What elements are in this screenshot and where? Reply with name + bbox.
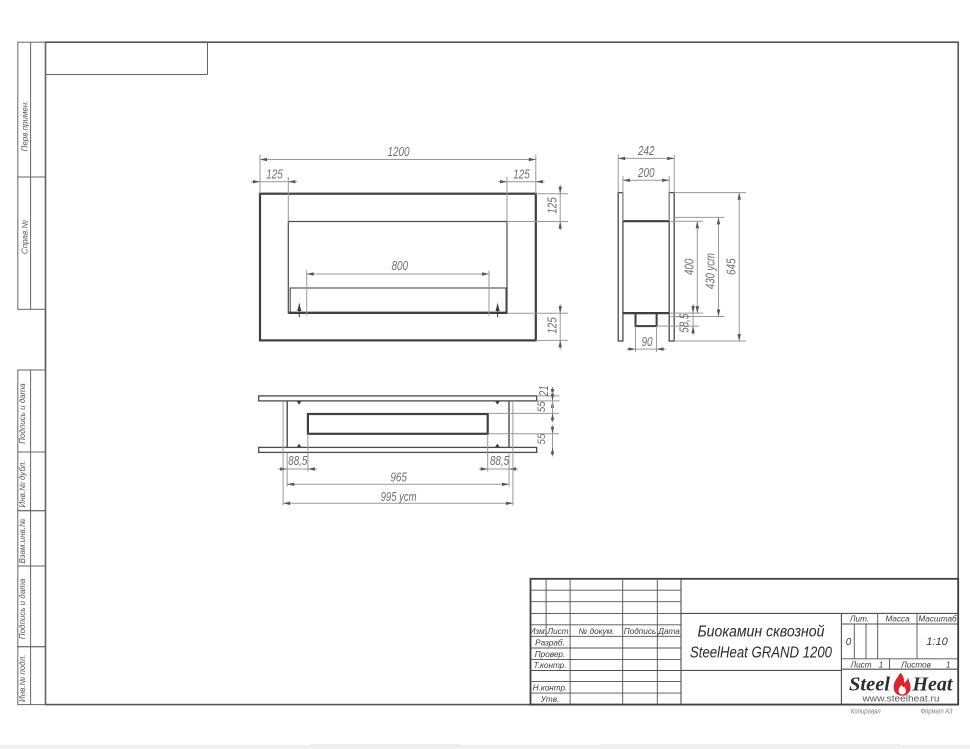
svg-text:58,5: 58,5 — [678, 314, 692, 333]
svg-text:125: 125 — [513, 167, 530, 181]
svg-text:Утв.: Утв. — [540, 695, 560, 704]
svg-text:Подпись: Подпись — [624, 627, 656, 636]
svg-text:400: 400 — [682, 259, 696, 276]
svg-text:965: 965 — [390, 470, 407, 484]
svg-text:Steel: Steel — [849, 674, 890, 696]
svg-text:645: 645 — [724, 259, 738, 276]
svg-text:21: 21 — [537, 385, 551, 397]
svg-text:Биокамин сквозной: Биокамин сквозной — [698, 624, 825, 641]
svg-text:55: 55 — [536, 401, 548, 413]
svg-text:Лист: Лист — [849, 660, 871, 669]
svg-text:430 уст: 430 уст — [704, 253, 718, 289]
svg-text:Т.контр.: Т.контр. — [533, 661, 566, 670]
svg-text:242: 242 — [637, 144, 654, 158]
svg-text:88,5: 88,5 — [288, 454, 307, 468]
svg-text:Справ.№: Справ.№ — [20, 220, 29, 254]
svg-text:Дата: Дата — [657, 627, 680, 636]
svg-text:№ докум.: № докум. — [578, 627, 614, 636]
svg-text:Разраб.: Разраб. — [535, 638, 565, 647]
svg-text:Листов: Листов — [900, 660, 932, 669]
svg-text:Взам.инв.№: Взам.инв.№ — [18, 518, 27, 563]
svg-text:1:10: 1:10 — [926, 636, 948, 648]
svg-text:Н.контр.: Н.контр. — [533, 683, 568, 692]
svg-text:55: 55 — [536, 433, 548, 445]
svg-text:SteelHeat GRAND 1200: SteelHeat GRAND 1200 — [690, 645, 832, 662]
svg-text:125: 125 — [546, 317, 560, 334]
svg-text:Перв.примен.: Перв.примен. — [20, 101, 29, 152]
svg-text:1: 1 — [879, 660, 884, 669]
svg-text:Лист: Лист — [546, 627, 568, 636]
svg-text:Лит.: Лит. — [849, 615, 869, 624]
svg-text:Инв.№ дубл.: Инв.№ дубл. — [18, 460, 27, 507]
svg-text:125: 125 — [266, 167, 283, 181]
svg-text:Масса: Масса — [885, 615, 910, 624]
svg-text:Формат А3: Формат А3 — [920, 709, 952, 716]
svg-text:0: 0 — [846, 637, 852, 648]
svg-text:200: 200 — [637, 166, 654, 180]
svg-text:Подпись и дата: Подпись и дата — [18, 383, 27, 444]
svg-text:Подпись и дата: Подпись и дата — [18, 578, 27, 639]
svg-text:Изм.: Изм. — [530, 627, 547, 636]
svg-text:Heat: Heat — [912, 674, 954, 696]
svg-text:1: 1 — [946, 660, 951, 669]
svg-text:995 уст: 995 уст — [381, 490, 417, 504]
svg-text:Провер.: Провер. — [535, 650, 566, 659]
svg-text:88,5: 88,5 — [490, 454, 509, 468]
svg-text:800: 800 — [391, 259, 408, 273]
svg-text:Инв.№ подл.: Инв.№ подл. — [18, 655, 27, 702]
svg-text:90: 90 — [642, 335, 653, 349]
svg-text:1200: 1200 — [388, 145, 410, 159]
svg-text:Масштаб: Масштаб — [918, 615, 957, 624]
svg-text:www.steelheat.ru: www.steelheat.ru — [861, 693, 939, 703]
svg-text:Копировал: Копировал — [851, 709, 881, 716]
svg-text:125: 125 — [546, 197, 560, 214]
